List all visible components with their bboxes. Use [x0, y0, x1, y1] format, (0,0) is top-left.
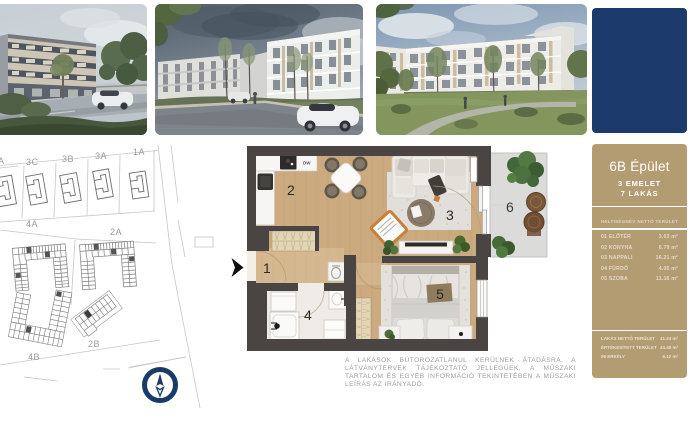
svg-text:4B: 4B — [28, 352, 40, 362]
svg-text:2A: 2A — [110, 227, 122, 237]
svg-text:DW: DW — [303, 161, 311, 166]
svg-text:2: 2 — [287, 182, 295, 198]
svg-text:2B: 2B — [88, 339, 100, 349]
svg-text:6: 6 — [506, 199, 514, 215]
svg-text:1: 1 — [263, 260, 271, 276]
svg-text:3A: 3A — [95, 151, 107, 161]
svg-text:1A: 1A — [133, 147, 145, 157]
svg-text:4A: 4A — [26, 219, 38, 229]
svg-text:4: 4 — [304, 307, 312, 323]
svg-text:3B: 3B — [62, 154, 74, 164]
svg-text:3: 3 — [446, 207, 454, 223]
svg-text:A: A — [0, 156, 5, 166]
svg-text:3C: 3C — [26, 157, 39, 167]
svg-text:5: 5 — [436, 286, 444, 302]
